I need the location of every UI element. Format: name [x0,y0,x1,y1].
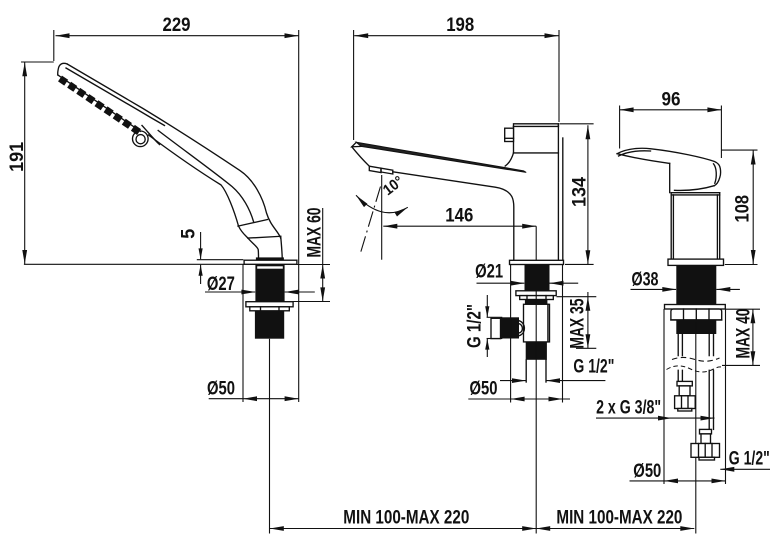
svg-text:G 1/2": G 1/2" [465,304,486,348]
svg-text:108: 108 [733,195,754,223]
svg-text:Ø21: Ø21 [475,262,503,283]
svg-text:2 x G 3/8": 2 x G 3/8" [596,398,661,419]
svg-text:Ø27: Ø27 [207,274,235,295]
svg-text:191: 191 [7,141,28,171]
svg-text:G 1/2": G 1/2" [729,449,770,470]
svg-text:MAX 35: MAX 35 [568,298,589,348]
svg-text:Ø50: Ø50 [207,379,235,400]
svg-text:MAX 40: MAX 40 [734,309,755,359]
svg-text:198: 198 [446,15,474,36]
svg-text:MIN 100-MAX 220: MIN 100-MAX 220 [343,508,469,529]
svg-text:229: 229 [163,15,191,36]
svg-text:5: 5 [178,228,199,238]
svg-text:Ø50: Ø50 [633,461,661,482]
svg-text:MAX 60: MAX 60 [304,208,325,258]
svg-text:MIN 100-MAX 220: MIN 100-MAX 220 [556,508,682,529]
svg-text:Ø50: Ø50 [470,379,498,400]
svg-text:96: 96 [662,90,681,111]
svg-text:134: 134 [569,177,590,207]
svg-text:Ø38: Ø38 [632,270,659,291]
svg-text:146: 146 [445,206,473,227]
svg-text:G 1/2": G 1/2" [573,357,614,378]
